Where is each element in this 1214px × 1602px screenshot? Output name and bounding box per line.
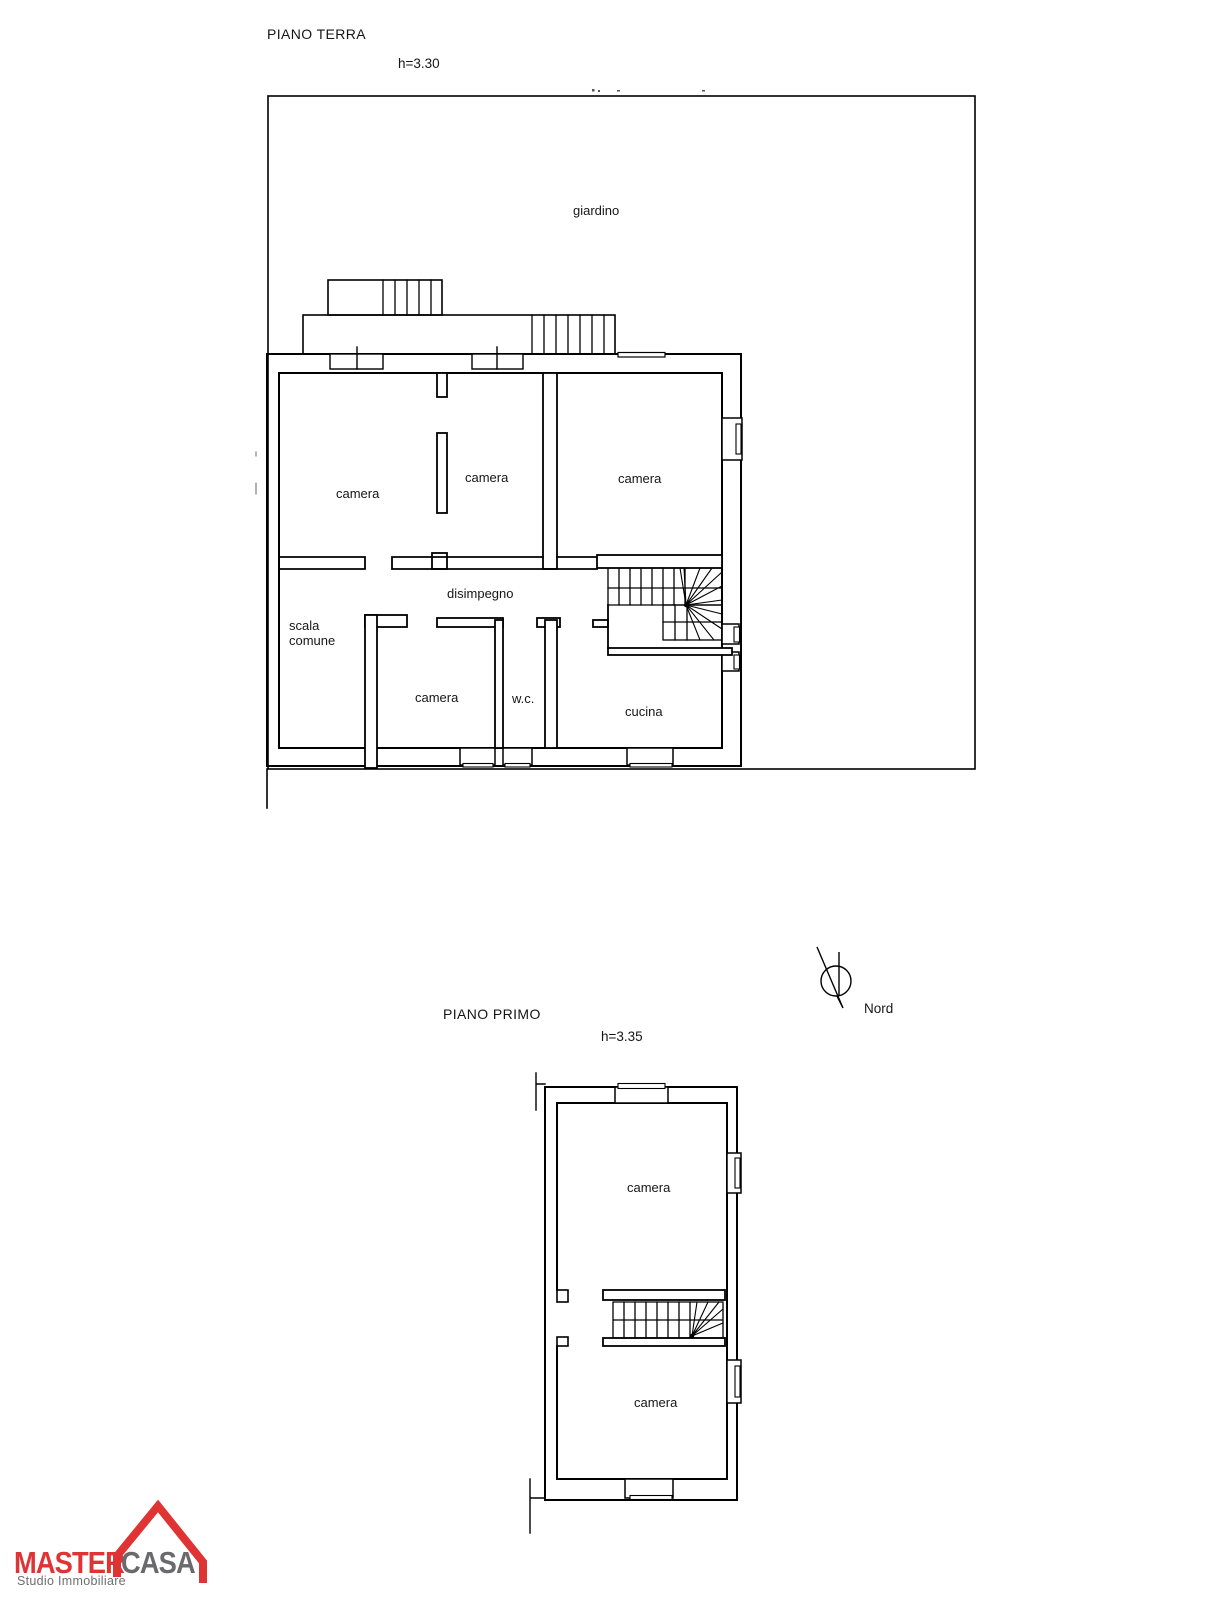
label-comune: comune <box>289 633 335 648</box>
interior-partitions <box>279 373 732 768</box>
floorplan-drawing <box>0 0 1214 1602</box>
logo-tagline-text: Studio Immobiliare <box>17 1574 126 1588</box>
boundary-tick-bottom <box>530 1479 545 1533</box>
label-nord: Nord <box>864 1001 893 1016</box>
label-disimpegno: disimpegno <box>447 586 514 601</box>
label-camera-ne: camera <box>618 471 661 486</box>
first-floor-height: h=3.35 <box>601 1029 643 1044</box>
logo-casa-text: CASA <box>121 1547 195 1578</box>
staircase-ground <box>597 555 722 640</box>
label-camera-1f-bottom: camera <box>634 1395 677 1410</box>
staircase-first <box>603 1290 725 1346</box>
floorplan-page: PIANO TERRA h=3.30 giardino camera camer… <box>0 0 1214 1602</box>
window-icons-right <box>722 418 742 671</box>
label-camera-s: camera <box>415 690 458 705</box>
first-floor-plan <box>530 1073 741 1533</box>
first-floor-title: PIANO PRIMO <box>443 1006 541 1022</box>
ground-floor-title: PIANO TERRA <box>267 26 366 42</box>
label-scala: scala <box>289 618 319 633</box>
ground-floor-plan <box>256 89 975 808</box>
door-jambs <box>557 1290 568 1346</box>
stray-dots <box>592 89 705 92</box>
label-camera-nw: camera <box>336 486 379 501</box>
label-giardino: giardino <box>573 203 619 218</box>
label-camera-n: camera <box>465 470 508 485</box>
compass-icon <box>817 947 851 1008</box>
boundary-tick-top <box>536 1073 545 1110</box>
terrace <box>303 280 615 354</box>
ground-floor-height: h=3.30 <box>398 56 440 71</box>
window-icons-bottom <box>460 748 673 767</box>
label-camera-1f-top: camera <box>627 1180 670 1195</box>
label-wc: w.c. <box>512 691 534 706</box>
label-cucina: cucina <box>625 704 663 719</box>
